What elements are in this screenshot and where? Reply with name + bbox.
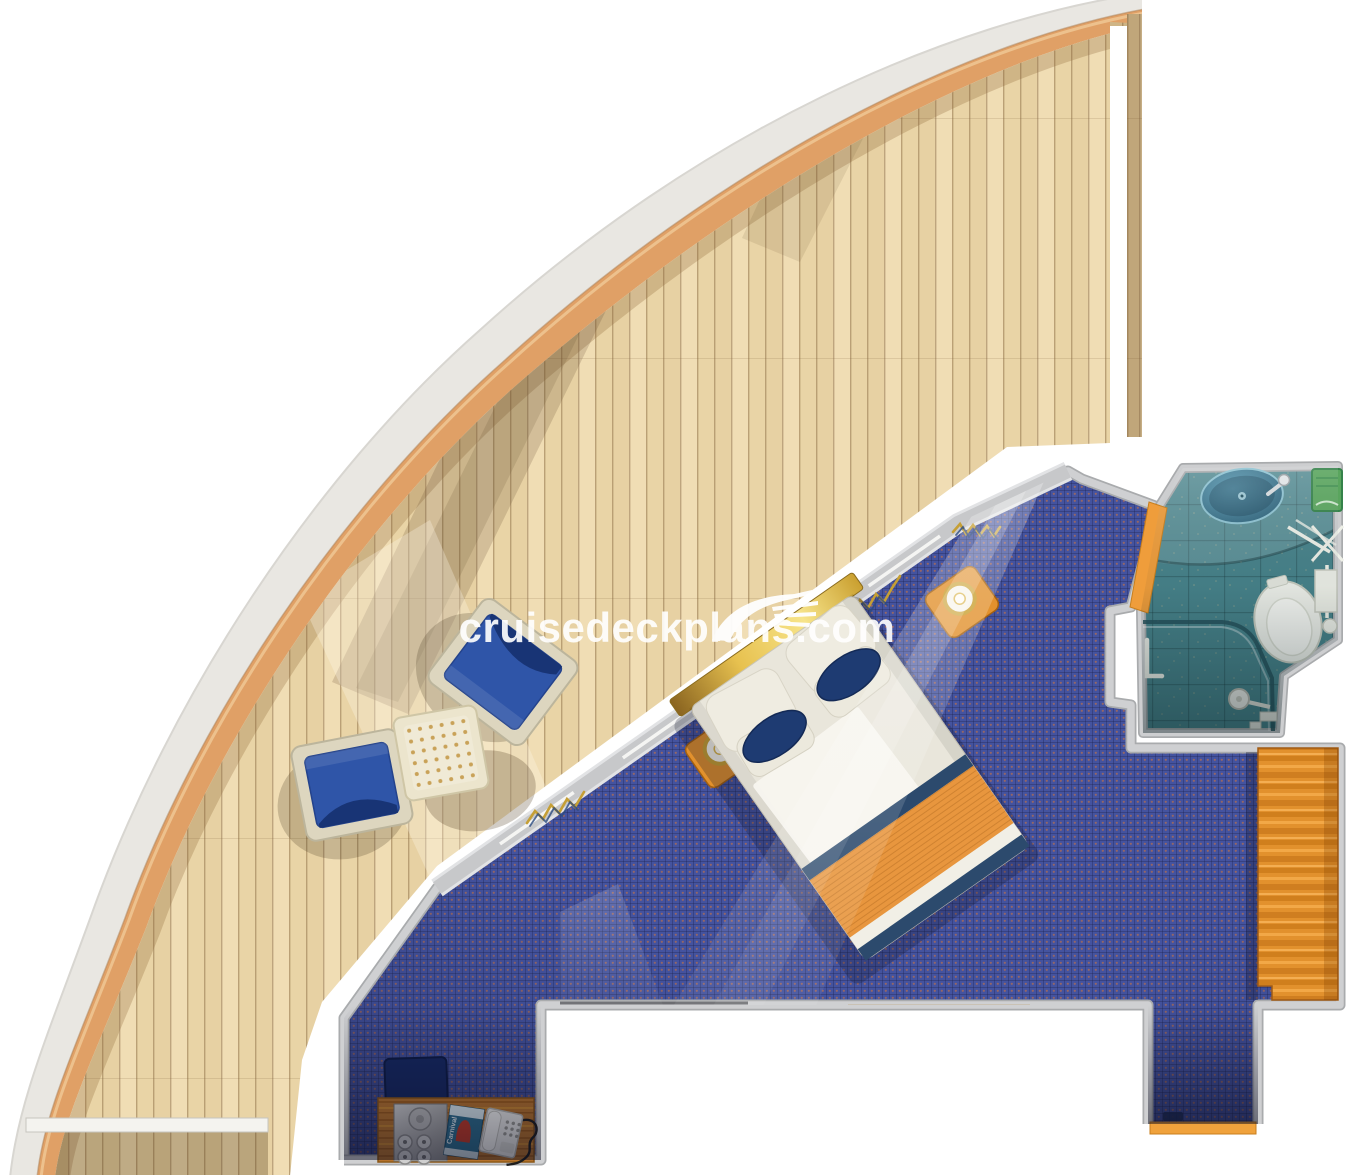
vestibule-shading (1148, 1005, 1258, 1124)
watermark-text: cruisedeckplans.com (459, 604, 896, 651)
alcove-shading (344, 1005, 541, 1160)
deck-plan-canvas: Carnival (0, 0, 1351, 1175)
deck-rail (26, 1118, 268, 1132)
deck-rail-shadow (40, 1132, 268, 1175)
neighbour-deck-strip (1127, 14, 1142, 437)
outside-mask (1142, 0, 1351, 456)
wardrobe (1246, 748, 1338, 1000)
privacy-partition-top (1110, 26, 1127, 450)
